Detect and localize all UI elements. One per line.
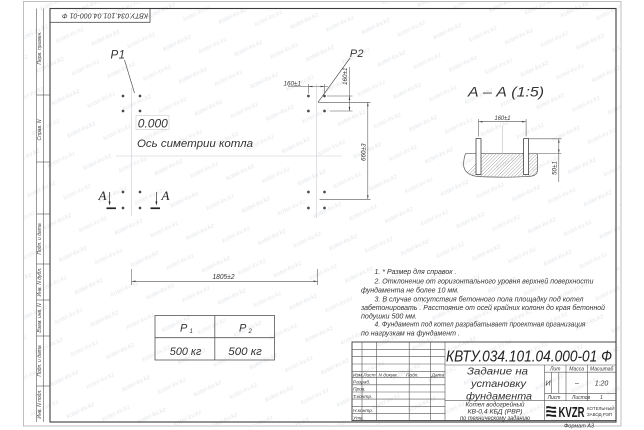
svg-text:2. Отклонение от горизонтально: 2. Отклонение от горизонтального уровня … — [374, 278, 594, 286]
svg-text:–: – — [574, 380, 579, 387]
svg-text:1: 1 — [190, 329, 193, 335]
svg-text:160±1: 160±1 — [342, 67, 349, 85]
svg-text:2: 2 — [248, 329, 253, 335]
svg-text:Листов: Листов — [571, 395, 591, 401]
svg-text:160±1: 160±1 — [495, 115, 511, 122]
svg-text:Разраб.: Разраб. — [353, 380, 370, 386]
svg-text:P: P — [180, 323, 188, 335]
svg-text:160±1: 160±1 — [284, 80, 302, 87]
svg-text:660±3: 660±3 — [360, 143, 367, 161]
svg-text:1:20: 1:20 — [595, 381, 609, 388]
svg-text:500 кг: 500 кг — [228, 346, 262, 358]
svg-text:фундамента не более 10 мм.: фундамента не более 10 мм. — [361, 286, 459, 294]
svg-text:A: A — [98, 188, 107, 203]
svg-text:4. Фундамент под котел разраба: 4. Фундамент под котел разрабатывает про… — [375, 320, 586, 328]
svg-text:КОТЕЛЬНЫЙ: КОТЕЛЬНЫЙ — [587, 406, 615, 411]
svg-text:подушки 500 мм.: подушки 500 мм. — [361, 313, 417, 321]
svg-text:Дата: Дата — [431, 372, 445, 378]
svg-text:1. * Размер для справок .: 1. * Размер для справок . — [375, 268, 457, 276]
svg-text:Подп.: Подп. — [406, 372, 419, 378]
svg-text:Ось симетрии котла: Ось симетрии котла — [137, 138, 253, 150]
svg-text:забетонировать . Расстояние от: забетонировать . Расстояние от осей край… — [360, 304, 605, 312]
svg-text:A: A — [161, 188, 170, 203]
svg-text:Котел водогрейный: Котел водогрейный — [466, 401, 526, 408]
svg-text:Задание на: Задание на — [467, 366, 528, 378]
svg-text:А – А (1:5): А – А (1:5) — [467, 85, 544, 100]
svg-text:Н.контр.: Н.контр. — [353, 408, 373, 414]
svg-text:P1: P1 — [111, 50, 126, 62]
svg-text:ЗАВОД РЭП: ЗАВОД РЭП — [587, 412, 612, 417]
svg-text:КВТУ.034.101.04.000-01 Ф: КВТУ.034.101.04.000-01 Ф — [446, 349, 612, 366]
svg-text:50±1: 50±1 — [551, 161, 558, 175]
svg-text:3. В случае отсутствия бетонно: 3. В случае отсутствия бетонного пола пл… — [375, 296, 584, 304]
svg-text:Пров.: Пров. — [353, 387, 366, 393]
svg-text:Масса: Масса — [569, 367, 584, 373]
svg-text:по техническому заданию: по техническому заданию — [460, 416, 530, 422]
svg-text:Взам. инв. N: Взам. инв. N — [37, 303, 43, 333]
svg-text:Масштаб: Масштаб — [590, 367, 614, 373]
svg-text:Подп. и дата: Подп. и дата — [37, 223, 43, 255]
svg-text:Формат А3: Формат А3 — [564, 424, 595, 430]
svg-text:1: 1 — [600, 395, 603, 401]
svg-text:фундамента: фундамента — [466, 391, 532, 403]
svg-text:P: P — [239, 323, 247, 335]
svg-text:Утв.: Утв. — [353, 415, 364, 421]
svg-text:Перв. примен.: Перв. примен. — [37, 31, 43, 64]
svg-text:Инв. N подл.: Инв. N подл. — [37, 389, 43, 418]
svg-text:Лит: Лит — [549, 367, 560, 373]
svg-text:KVZR: KVZR — [559, 405, 585, 421]
svg-text:КВ-0,4 КБД (РВР): КВ-0,4 КБД (РВР) — [468, 409, 523, 415]
svg-text:N докум.: N докум. — [379, 372, 398, 378]
svg-text:500 кг: 500 кг — [170, 346, 202, 358]
svg-text:Подп. и дата: Подп. и дата — [37, 345, 43, 377]
svg-text:1805±2: 1805±2 — [213, 274, 235, 281]
svg-text:КВТУ.034.101.04.000-01 Ф: КВТУ.034.101.04.000-01 Ф — [62, 11, 148, 18]
svg-text:по нагрузкам на фундамент .: по нагрузкам на фундамент . — [361, 330, 460, 338]
svg-text:Изм.Лист: Изм.Лист — [353, 372, 376, 378]
svg-text:0.000: 0.000 — [138, 117, 168, 131]
svg-text:P2: P2 — [350, 48, 364, 60]
svg-text:Инв. N дубл.: Инв. N дубл. — [37, 268, 43, 297]
svg-text:Справ. N: Справ. N — [37, 119, 43, 140]
svg-text:Лист: Лист — [547, 395, 561, 401]
svg-text:Т.контр.: Т.контр. — [353, 394, 372, 400]
svg-text:установку: установку — [470, 378, 527, 390]
